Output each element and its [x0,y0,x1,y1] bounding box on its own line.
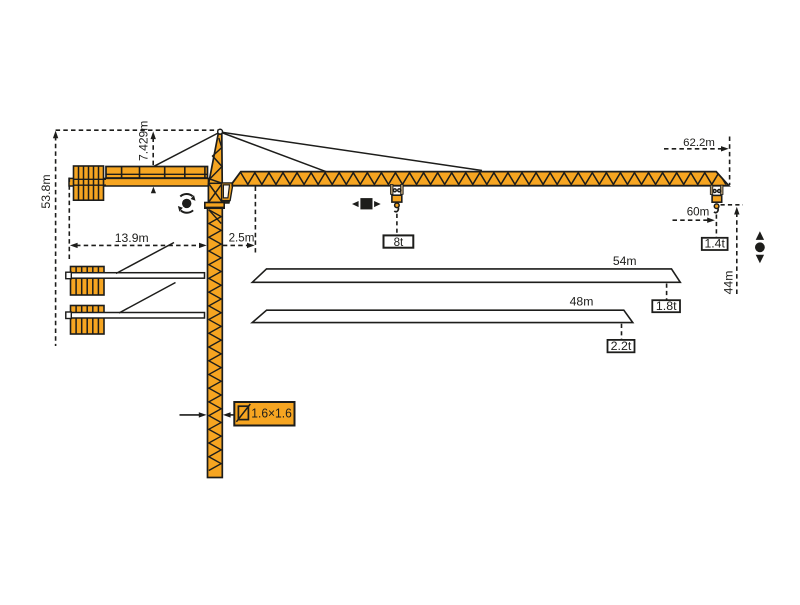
svg-text:2.2t: 2.2t [611,339,632,353]
svg-text:54m: 54m [613,254,637,268]
svg-text:7.429m: 7.429m [137,121,151,161]
svg-text:44m: 44m [722,271,736,295]
svg-text:13.9m: 13.9m [115,231,149,245]
svg-text:1.4t: 1.4t [705,237,726,251]
svg-text:62.2m: 62.2m [683,137,715,149]
svg-text:2.5m: 2.5m [229,231,255,244]
svg-text:60m: 60m [687,206,710,219]
svg-text:48m: 48m [570,295,594,309]
svg-text:8t: 8t [394,236,404,249]
svg-text:1.6×1.6: 1.6×1.6 [251,406,291,421]
svg-text:1.8t: 1.8t [656,299,677,313]
svg-text:53.8m: 53.8m [39,174,53,208]
